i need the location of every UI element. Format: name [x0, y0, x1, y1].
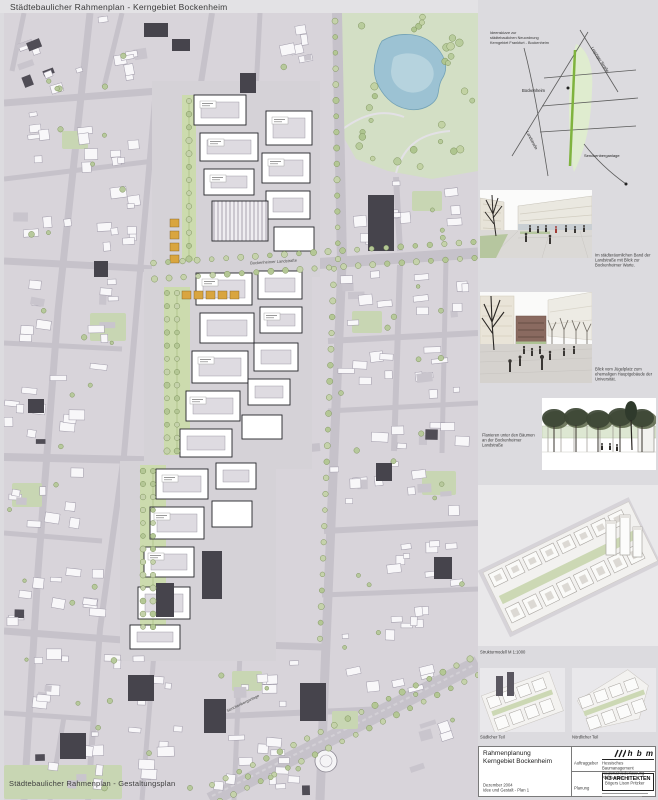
round-building — [315, 750, 337, 772]
hatched-hall — [212, 201, 268, 241]
locator-label-bockenheim: Bockenheim — [522, 88, 546, 93]
project-line1: Rahmenplanung — [483, 750, 552, 758]
locator-label-leipziger: Leipziger Straße — [590, 46, 611, 74]
city-map: Bockenheimer Landstraße Senckenberganlag… — [4, 13, 478, 800]
locator-sketch: Ideenskizze zur städtebaulichen Neuordnu… — [488, 26, 648, 194]
title-block: Rahmenplanung Kerngebiet Bockenheim Deze… — [478, 746, 656, 797]
caption-model: Strukturmodell M 1:1000 — [480, 650, 600, 659]
sidebar: Ideenskizze zur städtebaulichen Neuordnu… — [478, 0, 658, 800]
caption-mini-south: Südlicher Teil — [480, 735, 540, 744]
locator-dot-bockenheim — [567, 87, 570, 90]
locator-label-senckenberganlage: Senckenberganlage — [584, 153, 620, 158]
project-title: Rahmenplanung Kerngebiet Bockenheim — [483, 750, 552, 766]
hbm-logo-icon — [614, 749, 626, 758]
project-line2: Kerngebiet Bockenheim — [483, 758, 552, 766]
locator-dot-south — [625, 183, 628, 186]
caption-view2: Blick vom Jügelplatz zum ehemaligen Haup… — [595, 367, 655, 395]
plan-poster: Städtebaulicher Rahmenplan - Kerngebiet … — [0, 0, 658, 800]
architect-address-lines — [602, 793, 648, 795]
boulevard-sketch — [542, 398, 656, 470]
locator-label-landstrasse: Landstraße — [525, 130, 539, 151]
caption-view1: Im städteräumlichen Band der Landstraße … — [595, 253, 655, 281]
locator-note-line3: Kerngebiet Frankfurt - Bockenheim — [490, 41, 549, 45]
model-photo-south — [480, 668, 565, 732]
locator-note-line2: städtebaulichen Neuordnung — [490, 36, 539, 40]
perspective-view-1 — [480, 190, 592, 258]
architect-block: K3 ARCHITEKTEN Bögers Lison Pritzker — [602, 773, 654, 797]
plan-name: Idee und Gestalt - Plan 1 — [483, 788, 571, 793]
poster-title: Städtebaulicher Rahmenplan - Kerngebiet … — [10, 2, 227, 12]
hbm-logo-text: h b m — [628, 749, 654, 758]
model-photo-north — [572, 668, 656, 732]
city-map-canvas — [4, 13, 478, 800]
caption-view3: Flanieren unter den Bäumen an der Bocken… — [482, 433, 540, 461]
caption-mini-north: Nördlicher Teil — [572, 735, 632, 744]
architect-partners: Bögers Lison Pritzker — [605, 781, 657, 786]
locator-note-line1: Ideenskizze zur — [490, 31, 517, 35]
structural-model-photo — [478, 485, 658, 646]
architect-logo-box: K3 ARCHITEKTEN Bögers Lison Pritzker — [602, 773, 654, 791]
park — [340, 13, 478, 179]
map-overlay-caption: Städtebaulicher Rahmenplan - Gestaltungs… — [9, 779, 175, 788]
perspective-view-2 — [480, 292, 592, 383]
